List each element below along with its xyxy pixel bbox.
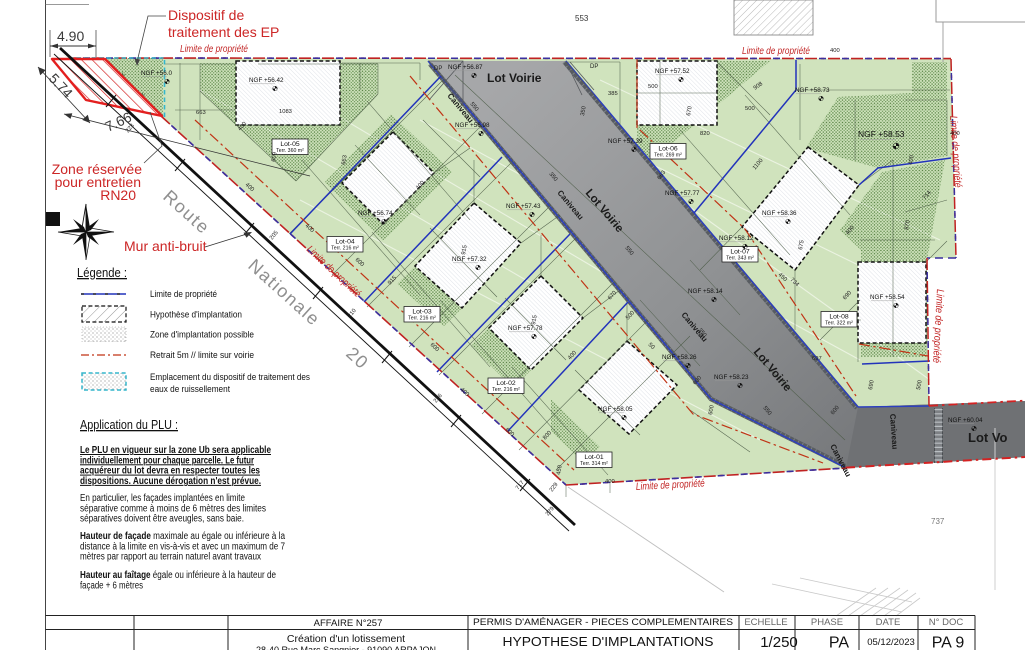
svg-text:PHASE: PHASE	[811, 617, 843, 628]
svg-text:Dispositif de: Dispositif de	[168, 7, 244, 23]
svg-text:Terr. 343 m²: Terr. 343 m²	[726, 256, 754, 262]
svg-text:400: 400	[830, 48, 840, 54]
svg-text:PA 9: PA 9	[932, 635, 965, 650]
svg-text:NGF +58.73: NGF +58.73	[795, 87, 830, 94]
svg-text:Lot-03: Lot-03	[412, 308, 431, 315]
svg-text:séparatives doivent être aveug: séparatives doivent être aveugles, sans …	[80, 514, 244, 525]
svg-text:Terr. 269 m²: Terr. 269 m²	[654, 153, 682, 159]
svg-text:NGF +58.26: NGF +58.26	[662, 354, 697, 361]
svg-text:NGF +60.04: NGF +60.04	[948, 417, 983, 424]
svg-text:Zone d'implantation possible: Zone d'implantation possible	[150, 330, 254, 341]
svg-text:Création d'un lotissement: Création d'un lotissement	[287, 633, 405, 645]
svg-text:05/12/2023: 05/12/2023	[867, 637, 915, 648]
svg-text:DP: DP	[434, 66, 442, 72]
svg-text:NGF +56.98: NGF +56.98	[455, 122, 490, 129]
svg-text:Lot-04: Lot-04	[335, 238, 354, 245]
svg-text:NGF +56.74: NGF +56.74	[358, 210, 393, 217]
svg-text:NGF +56.87: NGF +56.87	[448, 64, 483, 71]
svg-text:Lot-02: Lot-02	[496, 380, 515, 387]
svg-text:Légende :: Légende :	[77, 265, 127, 280]
svg-text:737: 737	[931, 517, 945, 526]
svg-text:DATE: DATE	[876, 617, 901, 628]
svg-text:Lot-01: Lot-01	[584, 454, 603, 461]
svg-text:traitement des EP: traitement des EP	[168, 24, 279, 40]
svg-text:Lot Vo: Lot Vo	[968, 430, 1008, 445]
svg-text:Lot-07: Lot-07	[730, 248, 749, 255]
svg-text:1/250: 1/250	[760, 634, 798, 650]
svg-text:N° DOC: N° DOC	[929, 617, 964, 628]
svg-text:Terr. 216 m²: Terr. 216 m²	[492, 387, 520, 393]
svg-text:553: 553	[575, 14, 589, 23]
svg-text:Mur anti-bruit: Mur anti-bruit	[124, 238, 207, 254]
svg-text:AFFAIRE N°257: AFFAIRE N°257	[314, 618, 383, 629]
svg-text:Limite de propriété: Limite de propriété	[180, 43, 248, 55]
svg-text:NGF +58.14: NGF +58.14	[688, 288, 723, 295]
svg-text:Terr. 216 m²: Terr. 216 m²	[331, 246, 359, 252]
svg-text:NGF +56.0: NGF +56.0	[141, 70, 172, 77]
svg-text:NGF +58.23: NGF +58.23	[714, 374, 749, 381]
svg-text:Lot-06: Lot-06	[658, 145, 677, 152]
svg-text:1083: 1083	[279, 109, 292, 115]
svg-text:NGF +57.32: NGF +57.32	[452, 256, 487, 263]
svg-text:NGF +58.12: NGF +58.12	[719, 235, 754, 242]
svg-text:NGF +57.78: NGF +57.78	[508, 325, 543, 332]
svg-text:Terr. 216 m²: Terr. 216 m²	[408, 316, 436, 322]
svg-text:697: 697	[812, 356, 822, 362]
svg-text:NGF +58.54: NGF +58.54	[870, 294, 905, 301]
svg-text:PERMIS D'AMÉNAGER - PIECES COM: PERMIS D'AMÉNAGER - PIECES COMPLEMENTAIR…	[473, 617, 733, 628]
svg-text:500: 500	[745, 106, 755, 112]
svg-text:NGF +57.77: NGF +57.77	[665, 190, 700, 197]
svg-text:Application du PLU :: Application du PLU :	[80, 417, 178, 432]
svg-text:NGF +58.36: NGF +58.36	[762, 210, 797, 217]
svg-text:ECHELLE: ECHELLE	[744, 617, 787, 628]
svg-text:NGF +57.39: NGF +57.39	[608, 138, 643, 145]
svg-text:NGF +56.42: NGF +56.42	[249, 77, 284, 84]
svg-text:NGF +57.52: NGF +57.52	[655, 68, 690, 75]
svg-text:eaux de ruissellement: eaux de ruissellement	[150, 384, 230, 395]
svg-text:4.90: 4.90	[57, 28, 84, 44]
svg-text:PA: PA	[829, 635, 849, 650]
svg-text:dispositions. Aucune dérogatio: dispositions. Aucune dérogation n'est pr…	[80, 476, 261, 487]
svg-text:400: 400	[605, 479, 615, 485]
svg-text:400: 400	[950, 131, 960, 137]
svg-text:Emplacement du dispositif de t: Emplacement du dispositif de traitement …	[150, 372, 310, 383]
svg-text:663: 663	[196, 110, 206, 116]
svg-text:DP: DP	[590, 64, 598, 70]
svg-text:Limite de propriété: Limite de propriété	[742, 45, 810, 57]
svg-text:mètres par rapport au terrain: mètres par rapport au terrain naturel av…	[80, 552, 261, 563]
svg-text:Retrait 5m // limite sur voiri: Retrait 5m // limite sur voirie	[150, 350, 254, 361]
svg-text:Lot-05: Lot-05	[280, 141, 299, 148]
svg-text:500: 500	[648, 84, 658, 90]
svg-text:NGF +57.43: NGF +57.43	[506, 203, 541, 210]
svg-text:RN20: RN20	[100, 187, 136, 203]
svg-text:385: 385	[608, 91, 618, 97]
svg-text:28-40 Rue Marc Sangnier - 9109: 28-40 Rue Marc Sangnier - 91090 ARPAJON	[256, 645, 436, 650]
svg-text:Lot-08: Lot-08	[829, 313, 848, 320]
svg-text:façade + 6 mètres: façade + 6 mètres	[80, 580, 143, 591]
svg-text:NGF +58.53: NGF +58.53	[858, 129, 905, 139]
svg-text:820: 820	[700, 131, 710, 137]
svg-text:Hypothèse d'implantation: Hypothèse d'implantation	[150, 310, 242, 321]
svg-text:HYPOTHESE D'IMPLANTATIONS: HYPOTHESE D'IMPLANTATIONS	[503, 634, 714, 649]
svg-text:Terr. 314 m²: Terr. 314 m²	[580, 461, 608, 467]
svg-text:Terr. 360 m²: Terr. 360 m²	[276, 148, 304, 154]
svg-text:Lot Voirie: Lot Voirie	[487, 71, 542, 85]
svg-text:Limite de propriété: Limite de propriété	[150, 289, 217, 300]
svg-text:Terr. 322 m²: Terr. 322 m²	[825, 321, 853, 327]
svg-text:NGF +58.05: NGF +58.05	[598, 406, 633, 413]
